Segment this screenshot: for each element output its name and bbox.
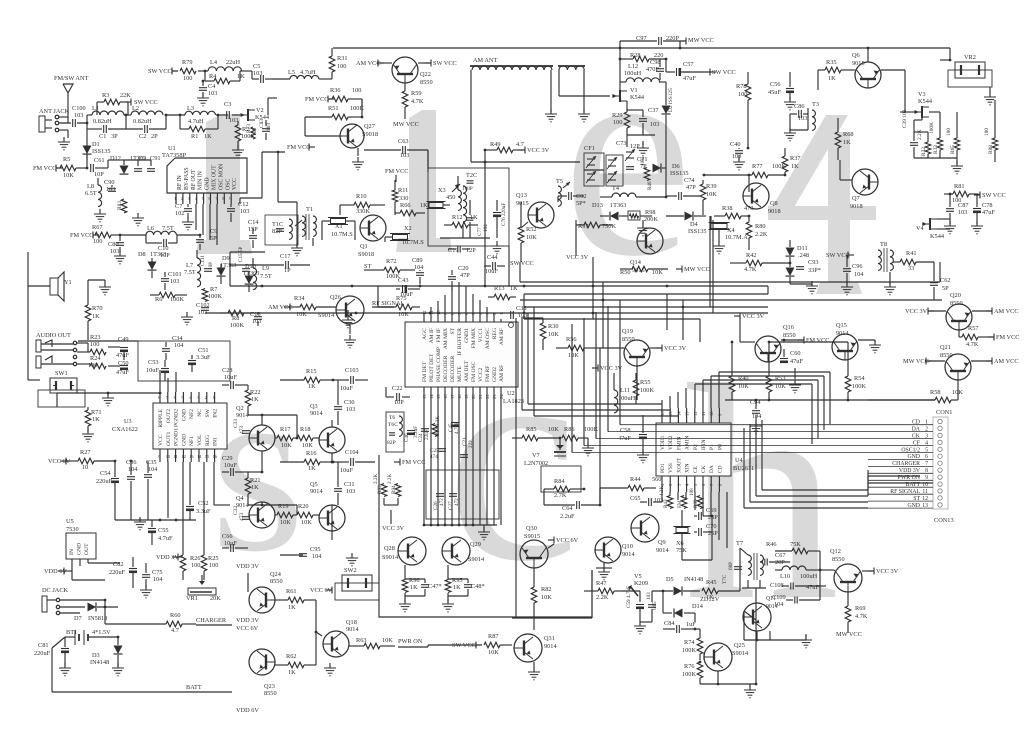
svg-text:FM VCC: FM VCC [385, 168, 409, 175]
svg-text:C89: C89 [412, 257, 423, 264]
svg-text:R11: R11 [398, 187, 408, 194]
svg-text:IN2: IN2 [213, 409, 219, 418]
svg-text:PGND2: PGND2 [174, 409, 180, 427]
svg-text:45uF: 45uF [768, 89, 781, 96]
svg-text:5P: 5P [942, 285, 949, 292]
svg-text:R33: R33 [933, 145, 939, 154]
svg-text:C93: C93 [808, 259, 819, 266]
svg-text:R81: R81 [954, 183, 965, 190]
svg-text:2: 2 [205, 395, 207, 400]
svg-text:103: 103 [958, 209, 967, 216]
svg-text:GND: GND [181, 434, 187, 446]
svg-text:U4: U4 [735, 457, 744, 464]
svg-text:180P: 180P [462, 186, 473, 192]
svg-text:47uF: 47uF [116, 352, 129, 359]
svg-text:7.5T: 7.5T [260, 273, 272, 280]
svg-text:10K: 10K [488, 649, 499, 656]
svg-text:10K: 10K [526, 234, 537, 241]
svg-text:VR2: VR2 [964, 54, 976, 61]
svg-text:C102: C102 [196, 302, 210, 309]
svg-text:9014: 9014 [544, 643, 557, 650]
svg-text:9018: 9018 [768, 208, 781, 215]
svg-text:L2: L2 [132, 105, 139, 112]
svg-text:4.7uF: 4.7uF [454, 422, 460, 434]
svg-text:R34: R34 [294, 295, 305, 302]
svg-text:C51: C51 [198, 347, 209, 354]
svg-text:1K: 1K [288, 604, 296, 611]
svg-text:VDD1: VDD1 [660, 435, 666, 450]
svg-text:RF IN: RF IN [177, 175, 183, 190]
svg-text:S9014: S9014 [382, 554, 399, 561]
svg-text:1K: 1K [828, 75, 836, 82]
svg-text:103: 103 [74, 112, 83, 119]
svg-text:103: 103 [266, 123, 272, 132]
svg-text:U2: U2 [507, 390, 515, 397]
svg-text:10K: 10K [281, 442, 292, 449]
svg-text:100: 100 [613, 119, 622, 126]
svg-text:IN4148: IN4148 [684, 576, 703, 583]
svg-text:1K: 1K [308, 383, 316, 390]
svg-text:Q31: Q31 [544, 635, 555, 642]
svg-text:X2: X2 [404, 225, 412, 232]
svg-text:FM VCC: FM VCC [305, 96, 329, 103]
svg-text:103: 103 [346, 406, 355, 413]
svg-text:1K: 1K [420, 202, 428, 209]
svg-text:C55: C55 [158, 527, 169, 534]
svg-text:R22: R22 [250, 389, 261, 396]
svg-text:C95: C95 [310, 546, 321, 553]
svg-text:R47: R47 [596, 580, 607, 587]
svg-text:P2: P2 [693, 444, 699, 450]
svg-text:C48*: C48* [471, 583, 485, 590]
svg-text:10K: 10K [706, 191, 717, 198]
svg-text:102: 102 [175, 210, 184, 217]
svg-text:10K: 10K [548, 426, 559, 433]
svg-text:4.7: 4.7 [516, 141, 524, 148]
svg-text:PILOT DET: PILOT DET [429, 353, 435, 382]
svg-text:2.2K: 2.2K [917, 129, 923, 140]
svg-text:R19: R19 [278, 503, 289, 510]
svg-text:4.7K: 4.7K [966, 341, 979, 348]
svg-text:103: 103 [400, 152, 409, 159]
svg-text:VDD 6V: VDD 6V [236, 707, 259, 714]
svg-text:22K: 22K [120, 92, 131, 99]
svg-text:AM IF: AM IF [429, 328, 435, 343]
svg-text:4.7K: 4.7K [744, 266, 757, 273]
svg-text:C3: C3 [224, 101, 231, 108]
svg-text:47P: 47P [460, 272, 470, 279]
svg-text:R18: R18 [300, 426, 311, 433]
svg-text:104: 104 [483, 224, 489, 232]
svg-text:AGC: AGC [422, 328, 428, 340]
svg-text:MW VCC: MW VCC [836, 631, 862, 638]
svg-text:5P: 5P [210, 235, 217, 242]
svg-text:330K: 330K [356, 208, 370, 215]
svg-text:VCC 6V: VCC 6V [236, 625, 259, 632]
svg-text:T3: T3 [812, 101, 819, 108]
svg-text:AM VCC: AM VCC [994, 308, 1019, 315]
svg-text:4.7K: 4.7K [411, 98, 424, 105]
svg-text:8550: 8550 [622, 336, 635, 343]
svg-text:104: 104 [414, 264, 424, 271]
svg-text:C111: C111 [200, 255, 206, 266]
svg-text:C43: C43 [398, 277, 409, 284]
svg-text:Q28: Q28 [384, 545, 395, 552]
svg-text:C75: C75 [152, 569, 163, 576]
svg-text:D14: D14 [692, 603, 704, 610]
svg-text:C59 4.7uF: C59 4.7uF [626, 586, 632, 608]
svg-text:10K: 10K [541, 594, 552, 601]
svg-text:R10: R10 [356, 193, 367, 200]
svg-text:3.3uF: 3.3uF [196, 508, 211, 515]
svg-text:FM VCC: FM VCC [70, 232, 94, 239]
svg-text:C19: C19 [448, 247, 459, 254]
svg-text:GND: GND [181, 409, 187, 421]
svg-text:C29: C29 [222, 455, 233, 462]
svg-text:C4: C4 [208, 83, 216, 90]
svg-text:VDD 3V: VDD 3V [236, 563, 259, 570]
svg-text:1T363: 1T363 [150, 251, 166, 258]
svg-text:473: 473 [239, 426, 245, 435]
svg-text:FM VCC: FM VCC [33, 165, 57, 172]
svg-text:220uF: 220uF [34, 650, 51, 657]
svg-text:2: 2 [181, 196, 183, 201]
svg-text:AM MIX: AM MIX [443, 328, 449, 349]
svg-text:47P: 47P [686, 184, 696, 191]
svg-text:14: 14 [676, 411, 681, 416]
svg-text:C54: C54 [100, 470, 111, 477]
svg-text:IN1: IN1 [213, 437, 219, 446]
svg-text:10uF: 10uF [224, 462, 237, 469]
svg-text:NC: NC [197, 409, 203, 417]
svg-text:MW VCC: MW VCC [903, 358, 929, 365]
svg-text:DECODER: DECODER [443, 355, 449, 382]
svg-text:450: 450 [446, 194, 455, 201]
svg-text:MIN IN: MIN IN [198, 170, 204, 190]
svg-text:MW VCC: MW VCC [688, 37, 714, 44]
svg-text:VCC 3V: VCC 3V [600, 365, 623, 372]
svg-text:750K: 750K [602, 223, 616, 230]
svg-text:L7: L7 [186, 262, 193, 269]
svg-text:ZD12V: ZD12V [700, 596, 720, 603]
svg-text:R17: R17 [280, 426, 291, 433]
svg-text:68P: 68P [728, 562, 734, 570]
svg-text:L6: L6 [147, 225, 154, 232]
svg-text:4.7K: 4.7K [855, 613, 868, 620]
svg-text:108: 108 [689, 488, 695, 496]
svg-text:FM VCC: FM VCC [287, 144, 311, 151]
svg-text:DA: DA [709, 465, 715, 473]
svg-text:1: 1 [174, 196, 176, 201]
svg-text:R98: R98 [645, 209, 656, 216]
svg-text:C86: C86 [794, 103, 805, 110]
svg-text:100: 100 [252, 128, 258, 137]
svg-text:21: 21 [478, 394, 483, 399]
svg-text:100K: 100K [170, 296, 184, 303]
svg-text:10P: 10P [208, 262, 214, 270]
svg-text:R44: R44 [630, 476, 641, 483]
svg-text:9015: 9015 [516, 200, 529, 207]
svg-text:C15 5P: C15 5P [238, 246, 244, 262]
svg-text:ST: ST [364, 263, 372, 270]
svg-text:1K: 1K [288, 669, 296, 676]
svg-text:100K: 100K [230, 322, 244, 329]
svg-text:103: 103 [732, 153, 741, 160]
svg-text:9014: 9014 [310, 410, 323, 417]
svg-text:103: 103 [346, 488, 355, 495]
svg-text:472: 472 [454, 498, 460, 506]
svg-text:47uF: 47uF [982, 209, 995, 216]
svg-text:10.7M.S: 10.7M.S [331, 231, 353, 238]
svg-text:T6C: T6C [388, 422, 398, 428]
svg-text:Q12: Q12 [830, 548, 841, 555]
svg-text:R78: R78 [736, 83, 747, 90]
svg-text:100: 100 [738, 91, 747, 98]
svg-text:9014: 9014 [310, 488, 323, 495]
svg-text:1K: 1K [237, 73, 245, 80]
svg-text:R51: R51 [328, 105, 339, 112]
svg-text:C101: C101 [168, 271, 182, 278]
svg-text:Q18: Q18 [346, 619, 357, 626]
svg-text:R94: R94 [391, 485, 397, 494]
svg-text:12: 12 [422, 310, 427, 315]
svg-text:IN: IN [69, 549, 75, 555]
svg-text:R26: R26 [190, 555, 201, 562]
svg-text:C60: C60 [790, 350, 801, 357]
svg-text:Q25: Q25 [734, 642, 745, 649]
svg-text:SW VCC: SW VCC [826, 252, 850, 259]
svg-text:T8: T8 [880, 241, 887, 248]
svg-text:C57: C57 [683, 61, 694, 68]
svg-text:R83: R83 [117, 201, 123, 210]
svg-text:4.7: 4.7 [171, 627, 179, 634]
svg-text:16: 16 [443, 394, 448, 399]
svg-text:220: 220 [654, 52, 663, 59]
svg-text:FM/SW ANT: FM/SW ANT [54, 75, 89, 82]
svg-text:100: 100 [209, 562, 218, 569]
svg-text:104: 104 [148, 466, 158, 473]
svg-text:2P: 2P [151, 133, 158, 140]
svg-text:9018: 9018 [850, 203, 863, 210]
svg-text:20K: 20K [210, 595, 221, 602]
svg-text:0.82uH: 0.82uH [93, 118, 112, 125]
svg-text:100: 100 [352, 87, 361, 94]
svg-text:R93: R93 [377, 485, 383, 494]
svg-text:R25: R25 [208, 555, 219, 562]
svg-text:VCC1: VCC1 [478, 328, 484, 343]
svg-text:470: 470 [744, 205, 753, 212]
svg-text:R77: R77 [752, 163, 763, 170]
svg-text:8550: 8550 [832, 556, 845, 563]
svg-text:103: 103 [229, 117, 238, 124]
svg-text:Q16: Q16 [783, 324, 794, 331]
svg-text:R56: R56 [566, 336, 577, 343]
svg-text:D13: D13 [592, 202, 603, 209]
svg-text:10: 10 [709, 411, 714, 416]
svg-text:DC JACK: DC JACK [42, 587, 69, 594]
svg-text:R96: R96 [409, 577, 420, 584]
svg-text:R80: R80 [755, 223, 766, 230]
svg-text:D9: D9 [222, 255, 230, 262]
svg-text:103: 103 [110, 248, 119, 255]
svg-text:AM DET: AM DET [464, 360, 470, 382]
svg-text:R86: R86 [564, 426, 575, 433]
svg-text:R37: R37 [790, 155, 801, 162]
svg-text:C63: C63 [398, 138, 409, 145]
svg-text:R59: R59 [411, 90, 422, 97]
svg-text:2.2K: 2.2K [373, 474, 379, 484]
svg-text:PD1: PD1 [660, 463, 666, 473]
svg-text:82P: 82P [387, 440, 396, 446]
svg-text:2.2K: 2.2K [387, 474, 393, 484]
svg-text:R38: R38 [722, 205, 733, 212]
svg-text:GND: GND [205, 177, 211, 190]
svg-text:100uH: 100uH [618, 395, 636, 402]
svg-text:9014: 9014 [236, 502, 249, 509]
svg-text:104: 104 [128, 466, 138, 473]
svg-text:1K: 1K [204, 133, 212, 140]
svg-text:220uF: 220uF [109, 569, 126, 576]
svg-text:103: 103 [106, 186, 115, 193]
svg-text:OUT2: OUT2 [166, 409, 172, 423]
svg-text:R3: R3 [102, 92, 109, 99]
svg-text:4.7uH: 4.7uH [188, 118, 204, 125]
svg-text:R88: R88 [988, 145, 994, 154]
svg-text:h: h [684, 322, 839, 665]
svg-text:10.7M.A: 10.7M.A [725, 234, 748, 241]
svg-text:10uF: 10uF [340, 385, 353, 392]
svg-text:103: 103 [240, 208, 249, 215]
svg-text:D12: D12 [110, 155, 121, 162]
svg-text:Q5: Q5 [310, 481, 318, 488]
svg-text:100: 100 [93, 238, 102, 245]
svg-text:R58: R58 [930, 389, 941, 396]
svg-text:Q11: Q11 [766, 596, 776, 602]
svg-text:C66: C66 [222, 533, 233, 540]
svg-text:7530: 7530 [66, 526, 79, 533]
svg-text:OUT1: OUT1 [166, 432, 172, 446]
svg-text:D7: D7 [74, 615, 82, 622]
svg-text:VCC2: VCC2 [478, 367, 484, 382]
svg-text:104: 104 [174, 342, 184, 349]
svg-text:MUTE: MUTE [457, 366, 463, 382]
svg-text:DECODER: DECODER [450, 355, 456, 382]
svg-text:103: 103 [208, 90, 217, 97]
svg-text:100uH: 100uH [800, 573, 818, 580]
svg-text:R54: R54 [854, 375, 865, 382]
svg-text:R8: R8 [232, 315, 239, 322]
svg-text:Q10: Q10 [622, 543, 633, 550]
svg-text:MW VCC: MW VCC [684, 266, 710, 273]
svg-text:CE: CE [693, 465, 699, 473]
svg-text:Q29: Q29 [470, 541, 481, 548]
svg-text:C80: C80 [108, 241, 119, 248]
svg-text:1uF: 1uF [686, 621, 696, 628]
svg-text:C100: C100 [72, 105, 86, 112]
svg-text:VCC 3V: VCC 3V [876, 568, 899, 575]
svg-text:C58: C58 [620, 427, 631, 434]
svg-text:11: 11 [701, 411, 706, 416]
svg-text:CON1: CON1 [936, 409, 952, 416]
svg-text:R12: R12 [452, 214, 463, 221]
svg-text:AM VCC: AM VCC [994, 358, 1019, 365]
svg-text:8550: 8550 [270, 578, 283, 585]
svg-text:V5: V5 [634, 573, 642, 580]
svg-text:1K: 1K [251, 396, 259, 403]
svg-text:75K: 75K [790, 541, 801, 548]
svg-text:Q6: Q6 [852, 52, 860, 59]
svg-text:VCC 3V: VCC 3V [527, 147, 550, 154]
svg-text:Q9: Q9 [658, 539, 666, 546]
svg-text:FM RF: FM RF [485, 366, 491, 382]
svg-text:C83: C83 [259, 119, 265, 128]
svg-text:47uF: 47uF [790, 358, 803, 365]
svg-text:3.3uF: 3.3uF [196, 354, 211, 361]
svg-text:7.5T: 7.5T [184, 269, 196, 276]
svg-text:IFIN: IFIN [701, 439, 707, 450]
svg-text:100uH: 100uH [624, 70, 642, 77]
svg-text:C9: C9 [210, 228, 217, 235]
svg-text:100K: 100K [682, 671, 696, 678]
svg-text:GND1: GND1 [464, 328, 470, 343]
svg-text:Q13: Q13 [516, 192, 527, 199]
svg-text:33: 33 [908, 265, 914, 272]
svg-text:R45: R45 [706, 579, 717, 586]
svg-text:R14 3.3K: R14 3.3K [435, 416, 441, 436]
svg-text:R20: R20 [298, 503, 309, 510]
svg-text:8550: 8550 [783, 332, 796, 339]
svg-text:1K: 1K [251, 484, 259, 491]
svg-text:K209: K209 [634, 580, 648, 587]
svg-text:Q24: Q24 [270, 571, 282, 578]
svg-text:T2C: T2C [466, 172, 477, 179]
svg-text:C44: C44 [487, 254, 498, 261]
svg-text:T1: T1 [306, 206, 313, 213]
svg-text:VCC: VCC [158, 434, 164, 446]
svg-text:9014: 9014 [236, 412, 249, 419]
svg-text:1K: 1K [92, 313, 100, 320]
svg-text:15: 15 [436, 394, 441, 399]
svg-text:CF1: CF1 [584, 145, 595, 152]
svg-text:VOL: VOL [197, 434, 203, 446]
svg-text:104: 104 [312, 553, 322, 560]
svg-text:Q15: Q15 [836, 322, 847, 329]
svg-text:V7: V7 [532, 452, 540, 459]
svg-text:Q3: Q3 [310, 403, 318, 410]
svg-text:8550: 8550 [420, 79, 433, 86]
svg-text:1K: 1K [843, 139, 851, 146]
svg-text:24: 24 [499, 394, 504, 399]
svg-text:K544: K544 [918, 98, 933, 105]
svg-text:L4: L4 [210, 59, 218, 66]
svg-text:C38: C38 [516, 305, 527, 312]
svg-text:C52: C52 [198, 500, 209, 507]
svg-text:8550: 8550 [940, 352, 953, 359]
svg-text:C70: C70 [706, 523, 717, 530]
svg-text:REG: REG [492, 328, 498, 339]
svg-text:C22: C22 [392, 385, 403, 392]
svg-text:104: 104 [752, 413, 762, 420]
svg-text:C81: C81 [38, 642, 49, 649]
svg-text:R39: R39 [706, 183, 717, 190]
svg-text:1T363: 1T363 [610, 202, 626, 209]
svg-text:CXA1622: CXA1622 [112, 426, 138, 433]
svg-text:C84: C84 [664, 620, 675, 627]
svg-text:R95: R95 [452, 577, 463, 584]
svg-text:R67: R67 [92, 224, 103, 231]
svg-text:R4: R4 [209, 73, 217, 80]
svg-text:25P: 25P [708, 530, 718, 537]
